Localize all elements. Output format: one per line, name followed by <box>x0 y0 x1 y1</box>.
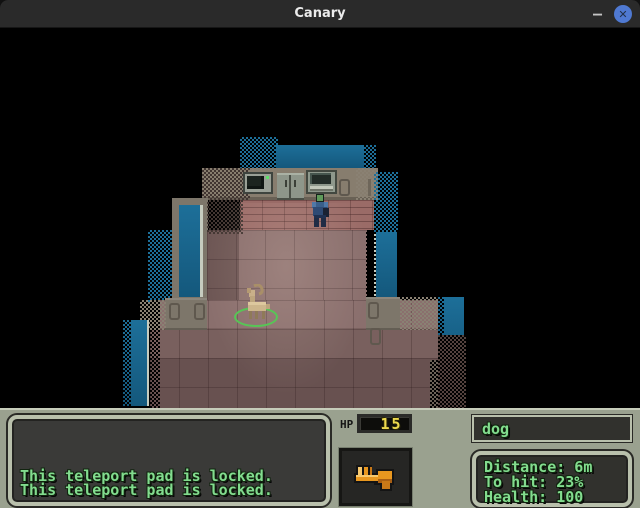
console-led <box>266 176 269 179</box>
app-window: Canary – ✕ <box>0 0 640 508</box>
wall-panel <box>370 328 381 345</box>
target-name-plate: dog <box>472 415 632 442</box>
hp-value: 15 <box>380 415 402 433</box>
message-log[interactable]: This teleport pad is locked. This telepo… <box>8 415 330 506</box>
game-viewport[interactable] <box>0 28 640 408</box>
titlebar[interactable]: Canary – ✕ <box>0 0 640 28</box>
terminal-keyboard <box>310 186 333 191</box>
target-health: Health: 100 <box>484 490 628 505</box>
locker-handle-right <box>294 180 296 187</box>
wall-panel <box>194 303 205 320</box>
teal-banner <box>276 145 364 168</box>
dog-icon <box>240 284 273 320</box>
door-left[interactable] <box>179 205 203 297</box>
hud-panel: This teleport pad is locked. This telepo… <box>0 408 640 508</box>
door-left-dither <box>148 230 172 304</box>
teal-banner-dither-right <box>364 145 376 168</box>
terminal-screen <box>310 173 331 184</box>
wall-vents <box>339 173 373 193</box>
minimize-button[interactable]: – <box>593 9 602 19</box>
hp-label: HP <box>340 418 353 431</box>
close-button[interactable]: ✕ <box>614 5 632 23</box>
locker-sprite[interactable] <box>277 173 304 200</box>
weapon-slot[interactable] <box>339 448 412 506</box>
console-sprite[interactable] <box>243 172 273 194</box>
log-line: This teleport pad is locked. <box>20 483 322 497</box>
pistol-icon <box>354 463 398 491</box>
wall-panel <box>368 302 379 319</box>
teal-lower-left-dither <box>123 320 131 406</box>
wall-vent-bar <box>368 179 371 196</box>
floor-light-shaft <box>210 203 380 408</box>
locker-door-gap <box>289 175 291 198</box>
console-screen <box>247 176 264 189</box>
locker-handle-left <box>285 180 287 187</box>
wall-right-mid <box>366 297 400 330</box>
floor-bottom-right-dither <box>438 335 466 408</box>
teal-banner-dither-left <box>240 137 278 168</box>
hp-box: 15 <box>357 414 412 433</box>
wall-right-mid-dither <box>400 297 438 330</box>
dog-sprite[interactable] <box>240 284 273 320</box>
soldier-sprite[interactable] <box>310 194 330 227</box>
wall-panel <box>169 303 180 320</box>
terminal-sprite[interactable] <box>306 170 337 194</box>
close-icon: ✕ <box>618 9 627 20</box>
window-controls: – ✕ <box>593 0 632 28</box>
window-title: Canary <box>294 6 345 21</box>
wall-vent-left <box>339 179 350 196</box>
wall-left-mid <box>165 298 207 330</box>
message-log-lines: This teleport pad is locked. This telepo… <box>20 469 322 497</box>
target-name: dog <box>482 422 509 436</box>
soldier-icon <box>310 194 330 227</box>
target-info-panel: Distance: 6m To hit: 23% Health: 100 <box>472 451 632 507</box>
